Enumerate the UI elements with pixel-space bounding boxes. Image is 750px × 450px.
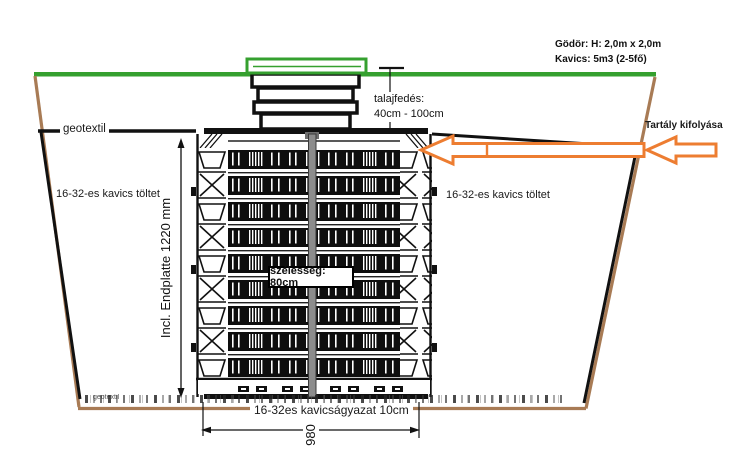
- geotextile-label-bottom: geotextil: [93, 394, 119, 401]
- width-label-box: szélesség: 80cm: [268, 266, 354, 288]
- pit-info-line1: Gödör: H: 2,0m x 2,0m: [555, 37, 661, 52]
- crate-left-column: [196, 148, 228, 378]
- gravel-bed-texture: [85, 395, 567, 403]
- geotextile-label-top: geotextil: [60, 123, 109, 135]
- diagram-linework: [0, 0, 750, 450]
- soil-cover-line1: talajfedés:: [374, 92, 444, 107]
- gravel-fill-label-right: 16-32-es kavics töltet: [446, 189, 550, 201]
- pit-info-note: Gödör: H: 2,0m x 2,0m Kavics: 5m3 (2-5fő…: [555, 37, 661, 67]
- riser-lid: [247, 59, 366, 73]
- riser-shaft: [252, 74, 359, 129]
- gravel-fill-label-left: 16-32-es kavics töltet: [56, 188, 160, 200]
- tank-outflow-label: Tartály kifolyása: [645, 120, 723, 131]
- installation-cross-section: Gödör: H: 2,0m x 2,0m Kavics: 5m3 (2-5fő…: [0, 0, 750, 450]
- pit-info-line2: Kavics: 5m3 (2-5fő): [555, 52, 661, 67]
- crate-right-column: [400, 148, 432, 378]
- soil-cover-note: talajfedés: 40cm - 100cm: [372, 92, 446, 122]
- soil-cover-line2: 40cm - 100cm: [374, 107, 444, 122]
- outflow-arrow-small: [647, 137, 716, 163]
- crate-assembly: [191, 128, 437, 399]
- width-dimension-label: 980: [303, 420, 319, 450]
- height-dimension-label: Incl. Endplatte 1220 mm: [158, 183, 174, 353]
- gravel-bed-label: 16-32es kavicságyazat 10cm: [250, 403, 413, 417]
- height-dimension-line: [178, 138, 185, 398]
